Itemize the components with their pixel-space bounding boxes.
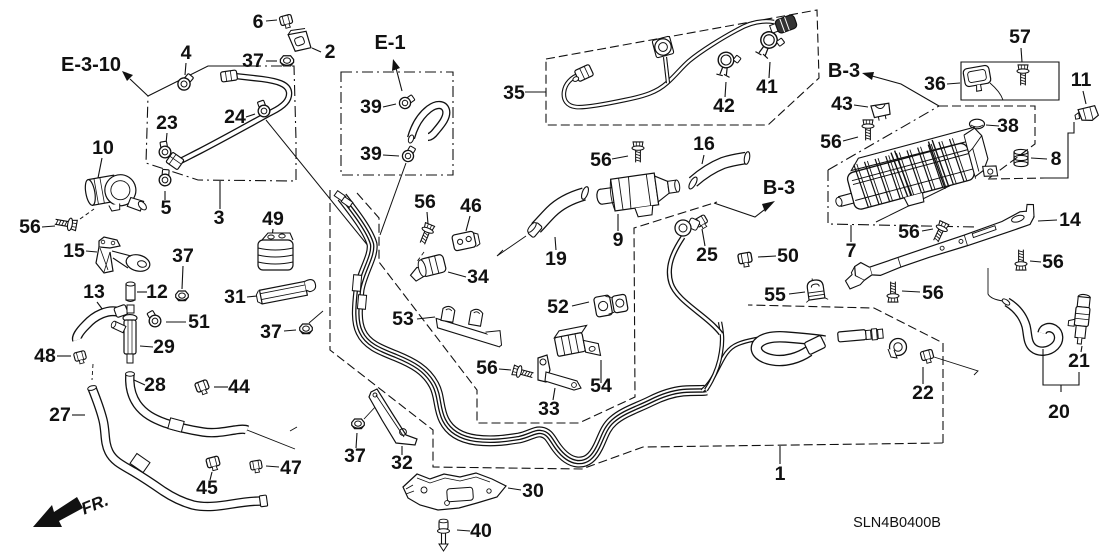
svg-text:52: 52	[547, 296, 569, 318]
svg-text:27: 27	[49, 404, 71, 426]
svg-text:47: 47	[280, 457, 302, 479]
svg-text:33: 33	[538, 398, 560, 420]
svg-text:10: 10	[92, 137, 114, 159]
svg-text:31: 31	[224, 286, 246, 308]
svg-text:39: 39	[360, 143, 382, 165]
svg-text:46: 46	[460, 195, 482, 217]
svg-text:30: 30	[522, 480, 544, 502]
svg-text:20: 20	[1048, 401, 1070, 423]
svg-text:11: 11	[1071, 69, 1092, 91]
svg-text:8: 8	[1051, 148, 1062, 170]
svg-text:37: 37	[172, 245, 194, 267]
svg-text:40: 40	[470, 520, 492, 542]
svg-text:B-3: B-3	[828, 60, 860, 82]
svg-text:55: 55	[764, 284, 786, 306]
svg-text:56: 56	[476, 357, 498, 379]
svg-text:E-1: E-1	[374, 32, 405, 54]
svg-text:37: 37	[242, 50, 264, 72]
svg-text:39: 39	[360, 96, 382, 118]
svg-text:56: 56	[922, 282, 944, 304]
svg-text:21: 21	[1068, 350, 1090, 372]
svg-text:45: 45	[196, 477, 218, 499]
svg-text:37: 37	[260, 321, 282, 343]
svg-text:7: 7	[846, 240, 857, 262]
svg-text:29: 29	[153, 336, 175, 358]
svg-text:44: 44	[228, 376, 250, 398]
svg-text:SLN4B0400B: SLN4B0400B	[853, 515, 941, 531]
svg-text:4: 4	[181, 42, 192, 64]
svg-text:37: 37	[344, 445, 366, 467]
svg-text:51: 51	[188, 311, 210, 333]
svg-text:12: 12	[146, 281, 168, 303]
svg-text:13: 13	[83, 281, 105, 303]
svg-text:19: 19	[545, 248, 567, 270]
svg-text:28: 28	[144, 374, 166, 396]
svg-text:36: 36	[924, 73, 946, 95]
svg-text:22: 22	[912, 382, 934, 404]
svg-text:56: 56	[414, 191, 436, 213]
svg-text:49: 49	[262, 208, 284, 230]
svg-text:1: 1	[775, 463, 786, 485]
svg-text:9: 9	[613, 229, 624, 251]
svg-text:38: 38	[997, 115, 1019, 137]
svg-text:B-3: B-3	[763, 177, 795, 199]
svg-text:43: 43	[831, 93, 853, 115]
svg-text:53: 53	[392, 308, 414, 330]
svg-text:42: 42	[713, 95, 735, 117]
svg-text:23: 23	[156, 112, 178, 134]
svg-text:32: 32	[391, 452, 413, 474]
svg-text:48: 48	[34, 345, 56, 367]
svg-text:35: 35	[503, 82, 525, 104]
svg-text:50: 50	[777, 245, 799, 267]
svg-text:16: 16	[693, 133, 715, 155]
svg-text:14: 14	[1059, 209, 1081, 231]
svg-text:34: 34	[467, 266, 489, 288]
svg-text:56: 56	[820, 131, 842, 153]
svg-text:3: 3	[214, 207, 225, 229]
svg-text:56: 56	[19, 216, 41, 238]
svg-text:2: 2	[325, 41, 336, 63]
svg-text:15: 15	[63, 240, 85, 262]
svg-text:25: 25	[696, 244, 718, 266]
svg-text:E-3-10: E-3-10	[61, 54, 121, 76]
svg-text:56: 56	[590, 149, 612, 171]
svg-text:56: 56	[898, 221, 920, 243]
svg-text:57: 57	[1009, 26, 1031, 48]
svg-text:41: 41	[756, 76, 778, 98]
svg-text:6: 6	[253, 11, 264, 33]
svg-text:24: 24	[224, 106, 246, 128]
svg-text:5: 5	[161, 197, 172, 219]
svg-text:56: 56	[1042, 251, 1064, 273]
